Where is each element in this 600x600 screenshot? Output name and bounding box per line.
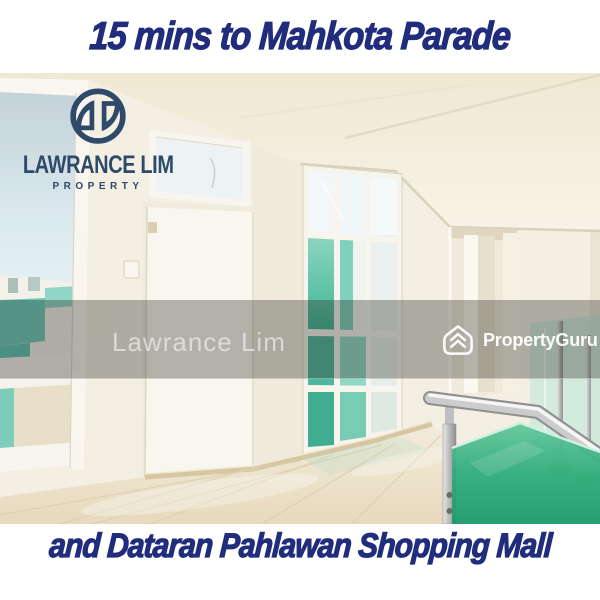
lawrance-lim-monogram-icon: [68, 88, 128, 148]
brand-watermark-label: PropertyGuru: [483, 330, 598, 351]
agency-logo: LAWRANCE LIM PROPERTY: [18, 88, 178, 192]
top-banner: 15 mins to Mahkota Parade: [0, 0, 600, 73]
propertyguru-logo-icon: [441, 323, 475, 357]
agency-logo-title: LAWRANCE LIM: [23, 151, 174, 180]
agency-logo-subtitle: PROPERTY: [52, 181, 143, 192]
bottom-banner: and Dataran Pahlawan Shopping Mall: [0, 524, 600, 600]
agent-watermark: Lawrance Lim: [112, 327, 286, 358]
light-switch: [124, 261, 139, 278]
top-banner-text: 15 mins to Mahkota Parade: [88, 15, 511, 59]
brand-watermark: PropertyGuru: [441, 323, 598, 357]
bottom-banner-text: and Dataran Pahlawan Shopping Mall: [48, 527, 552, 566]
door-latch: [148, 222, 157, 233]
